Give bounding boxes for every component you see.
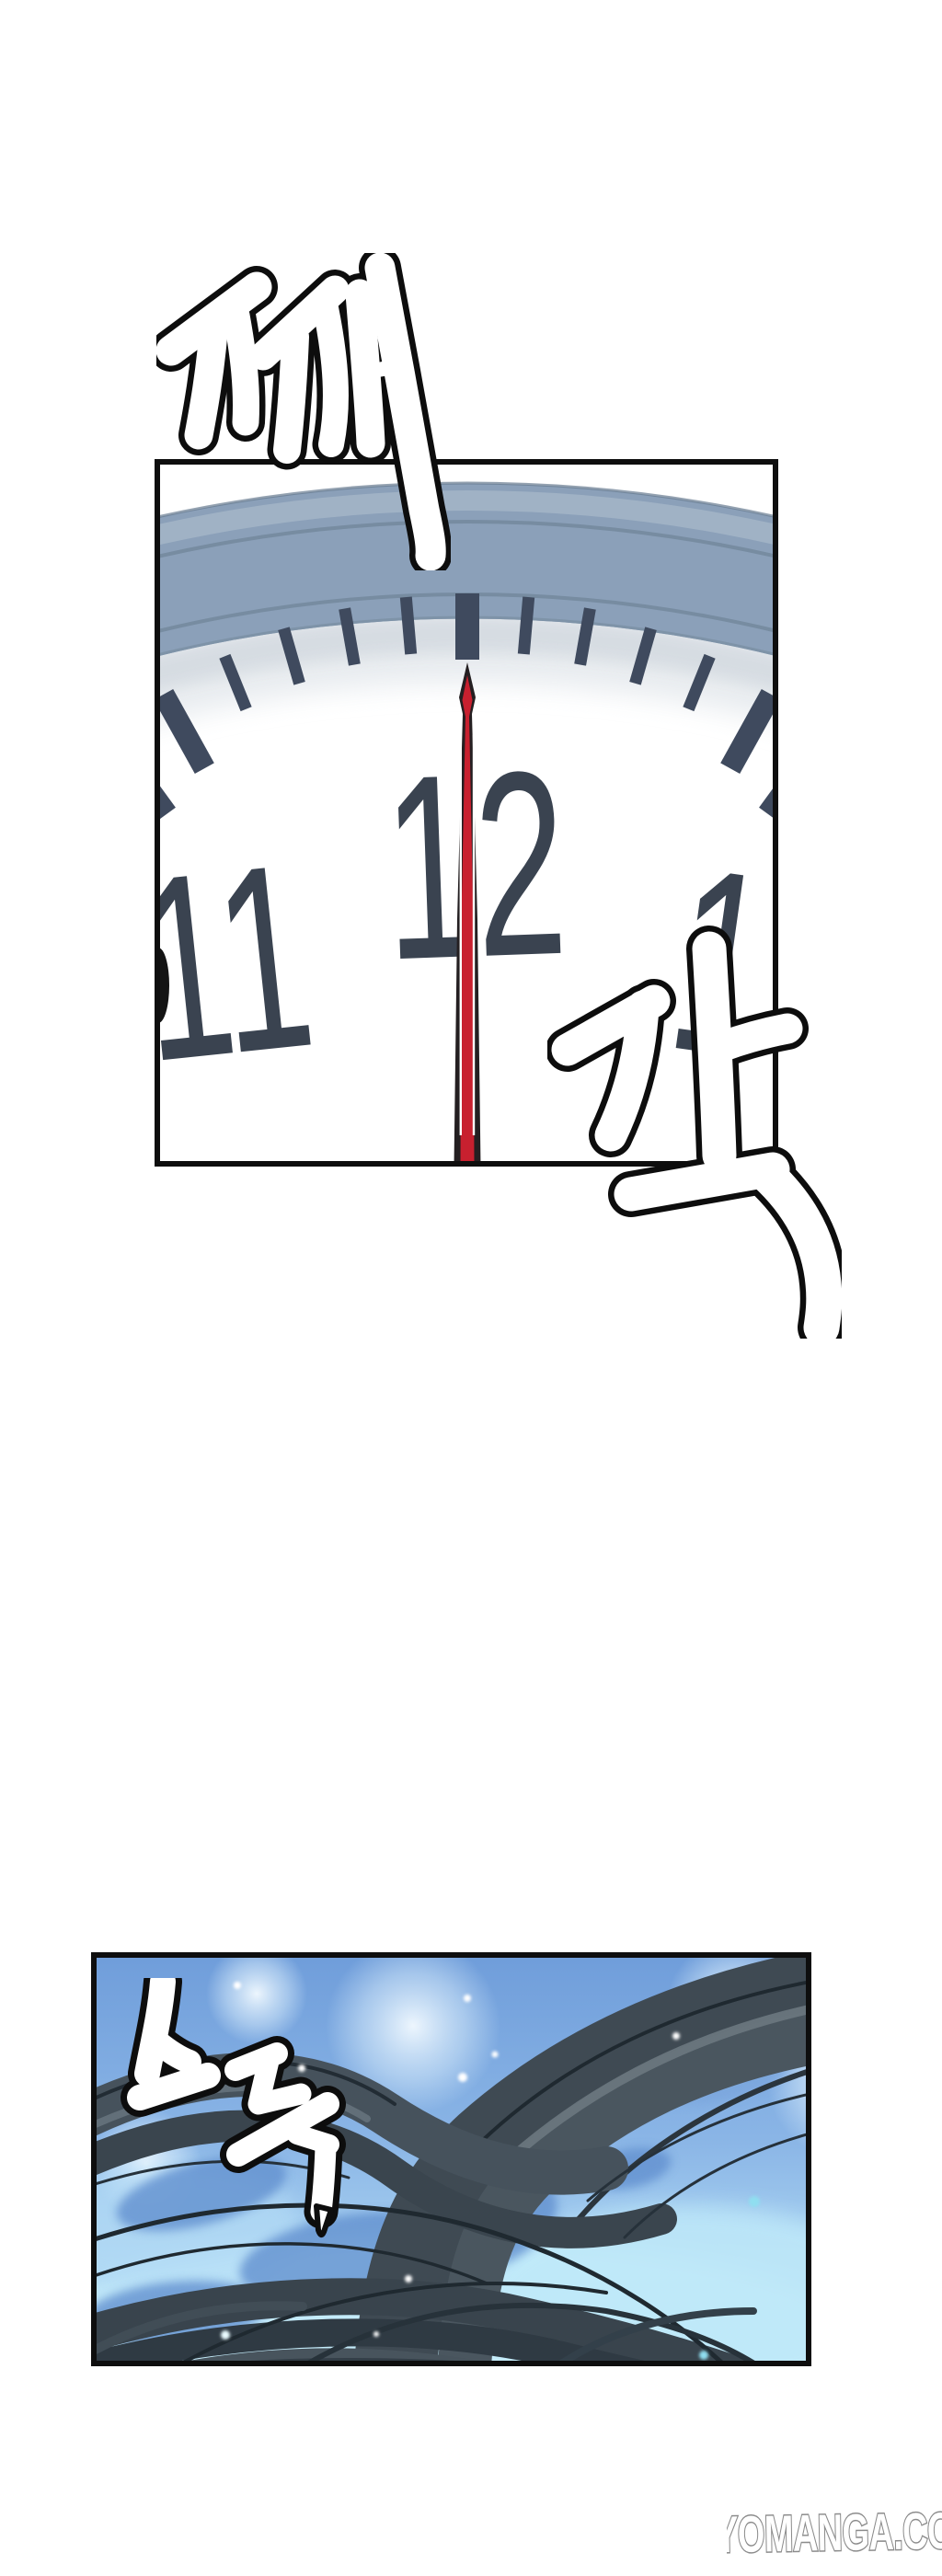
manhwa-page: { "page": { "width": 1024, "height": 280… <box>0 0 942 2576</box>
watermark: YOMANGA.CO <box>727 2495 942 2574</box>
underwater-hair-panel <box>91 1952 811 2366</box>
clock-illustration: 11 12 1 <box>155 459 778 1167</box>
second-hand-slit-left <box>460 735 462 1135</box>
watermark-text: YOMANGA.CO <box>727 2503 942 2565</box>
clock-number-11: 11 <box>155 809 325 1118</box>
hair-illustration <box>91 1952 811 2366</box>
clock-number-1: 1 <box>656 811 778 1114</box>
clock-panel: 11 12 1 <box>155 459 778 1167</box>
second-hand-slit-right <box>473 735 475 1135</box>
